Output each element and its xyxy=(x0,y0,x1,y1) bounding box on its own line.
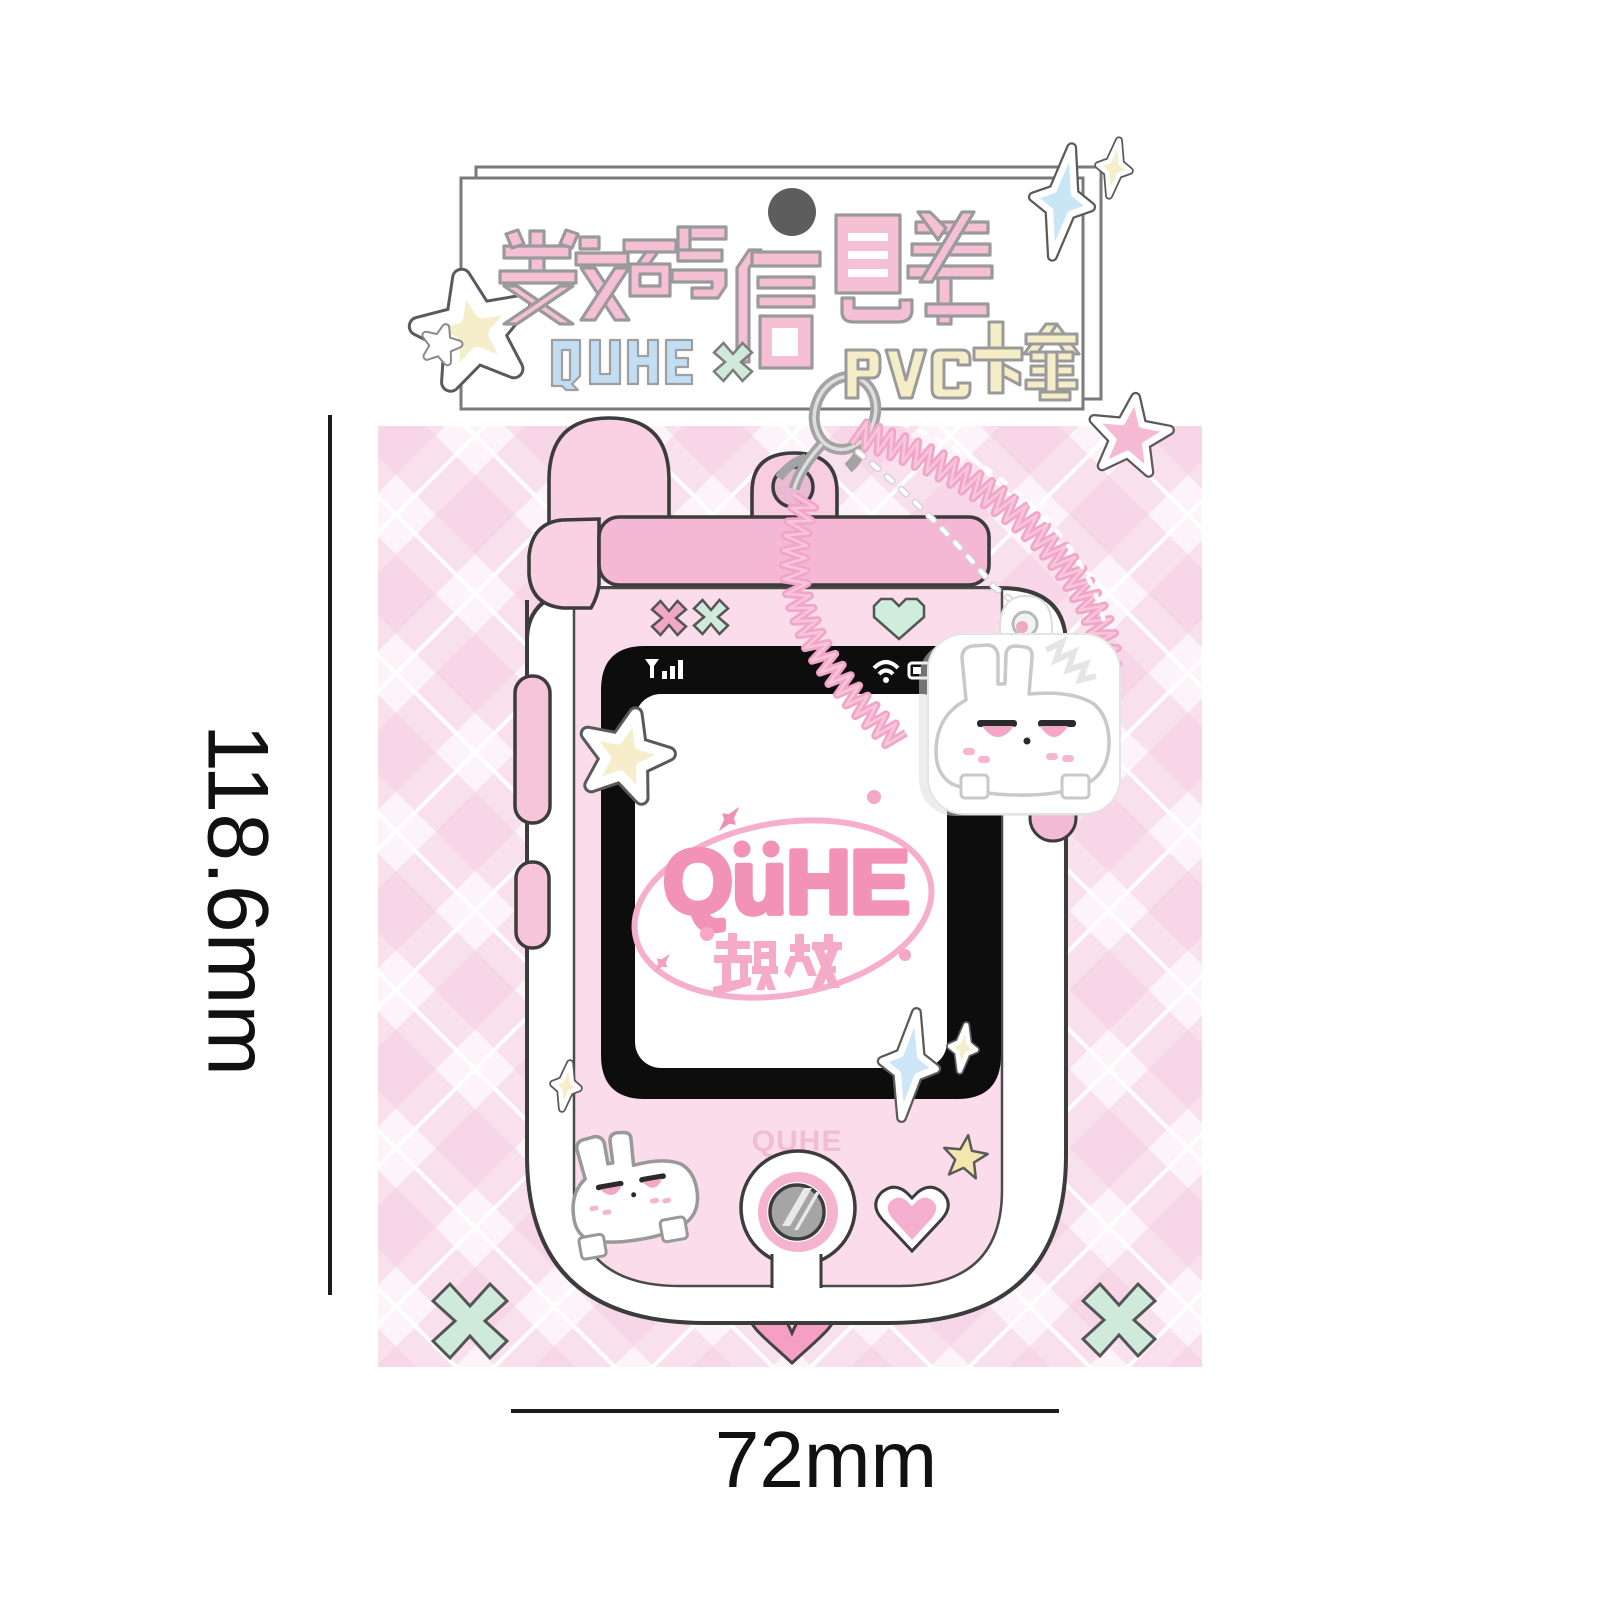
svg-text:72mm: 72mm xyxy=(715,1415,937,1504)
svg-text:QuHE: QuHE xyxy=(663,833,909,933)
svg-text:118.6mm: 118.6mm xyxy=(189,724,285,1076)
